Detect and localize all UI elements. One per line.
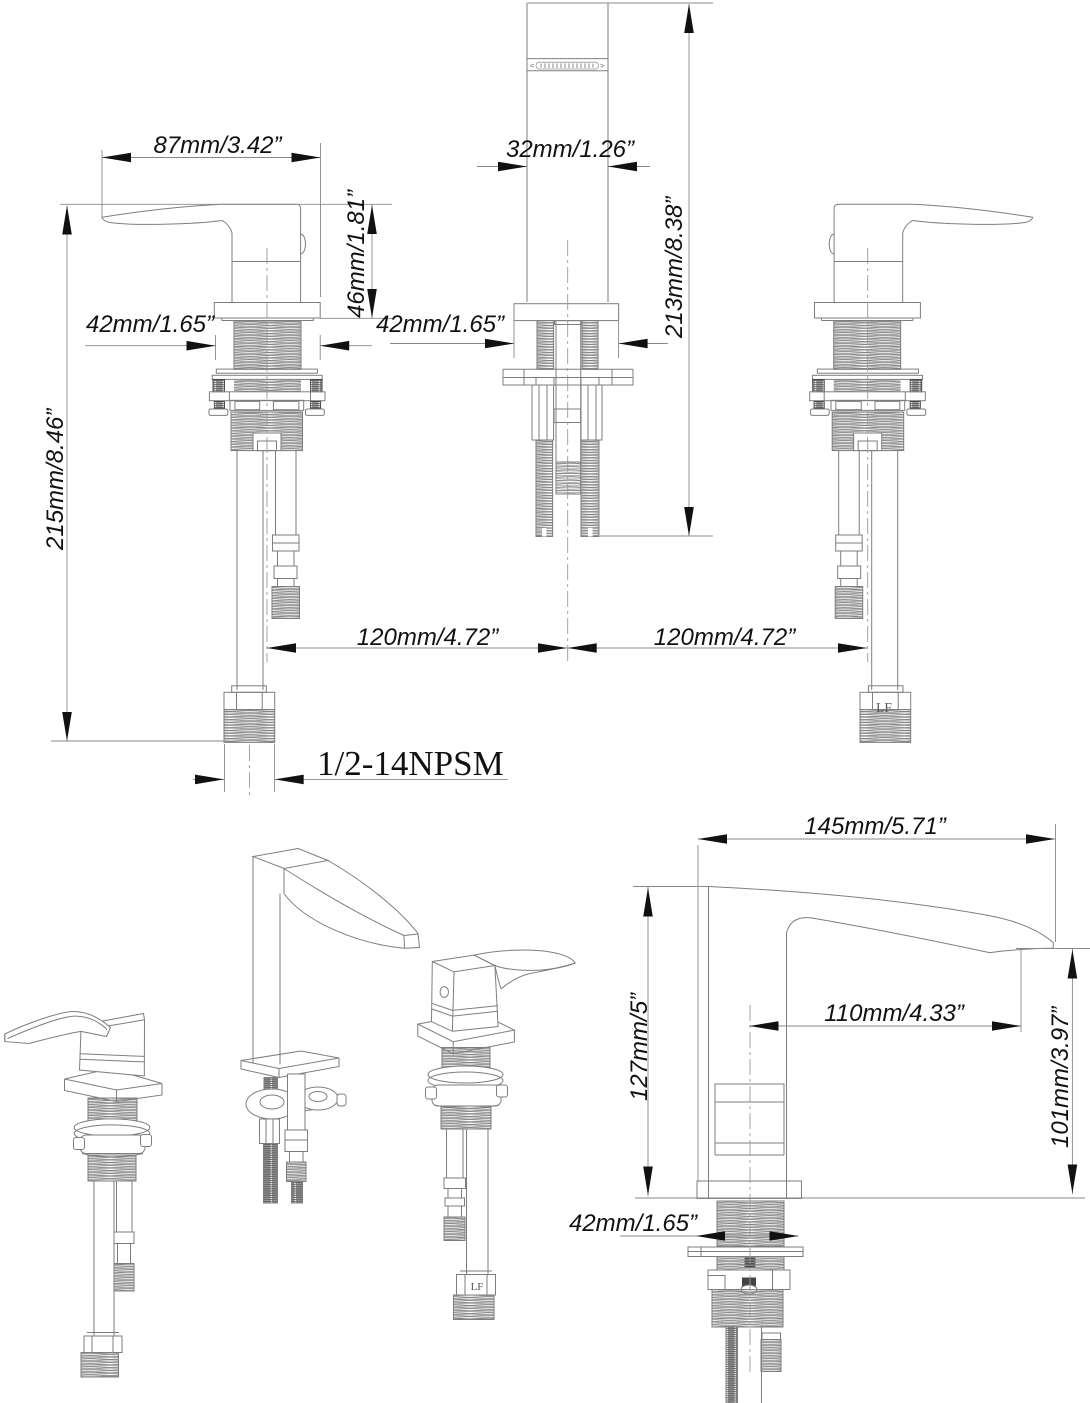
svg-text:32mm/1.26”: 32mm/1.26” [506,136,635,163]
svg-text:215mm/8.46”: 215mm/8.46” [42,408,69,551]
svg-text:42mm/1.65”: 42mm/1.65” [86,311,215,338]
svg-text:120mm/4.72”: 120mm/4.72” [357,624,499,651]
svg-text:LF: LF [471,1281,484,1293]
svg-text:LF: LF [876,700,892,715]
svg-text:87mm/3.42”: 87mm/3.42” [153,132,282,159]
svg-text:46mm/1.81”: 46mm/1.81” [343,189,370,318]
svg-text:42mm/1.65”: 42mm/1.65” [569,1210,698,1237]
svg-text:213mm/8.38”: 213mm/8.38” [661,196,688,339]
svg-text:101mm/3.97”: 101mm/3.97” [1047,1006,1074,1148]
svg-text:127mm/5”: 127mm/5” [626,992,653,1101]
svg-text:1/2-14NPSM: 1/2-14NPSM [317,744,504,783]
svg-text:110mm/4.33”: 110mm/4.33” [824,1000,965,1027]
svg-text:120mm/4.72”: 120mm/4.72” [654,624,796,651]
svg-text:42mm/1.65”: 42mm/1.65” [376,311,505,338]
svg-text:145mm/5.71”: 145mm/5.71” [804,813,946,840]
